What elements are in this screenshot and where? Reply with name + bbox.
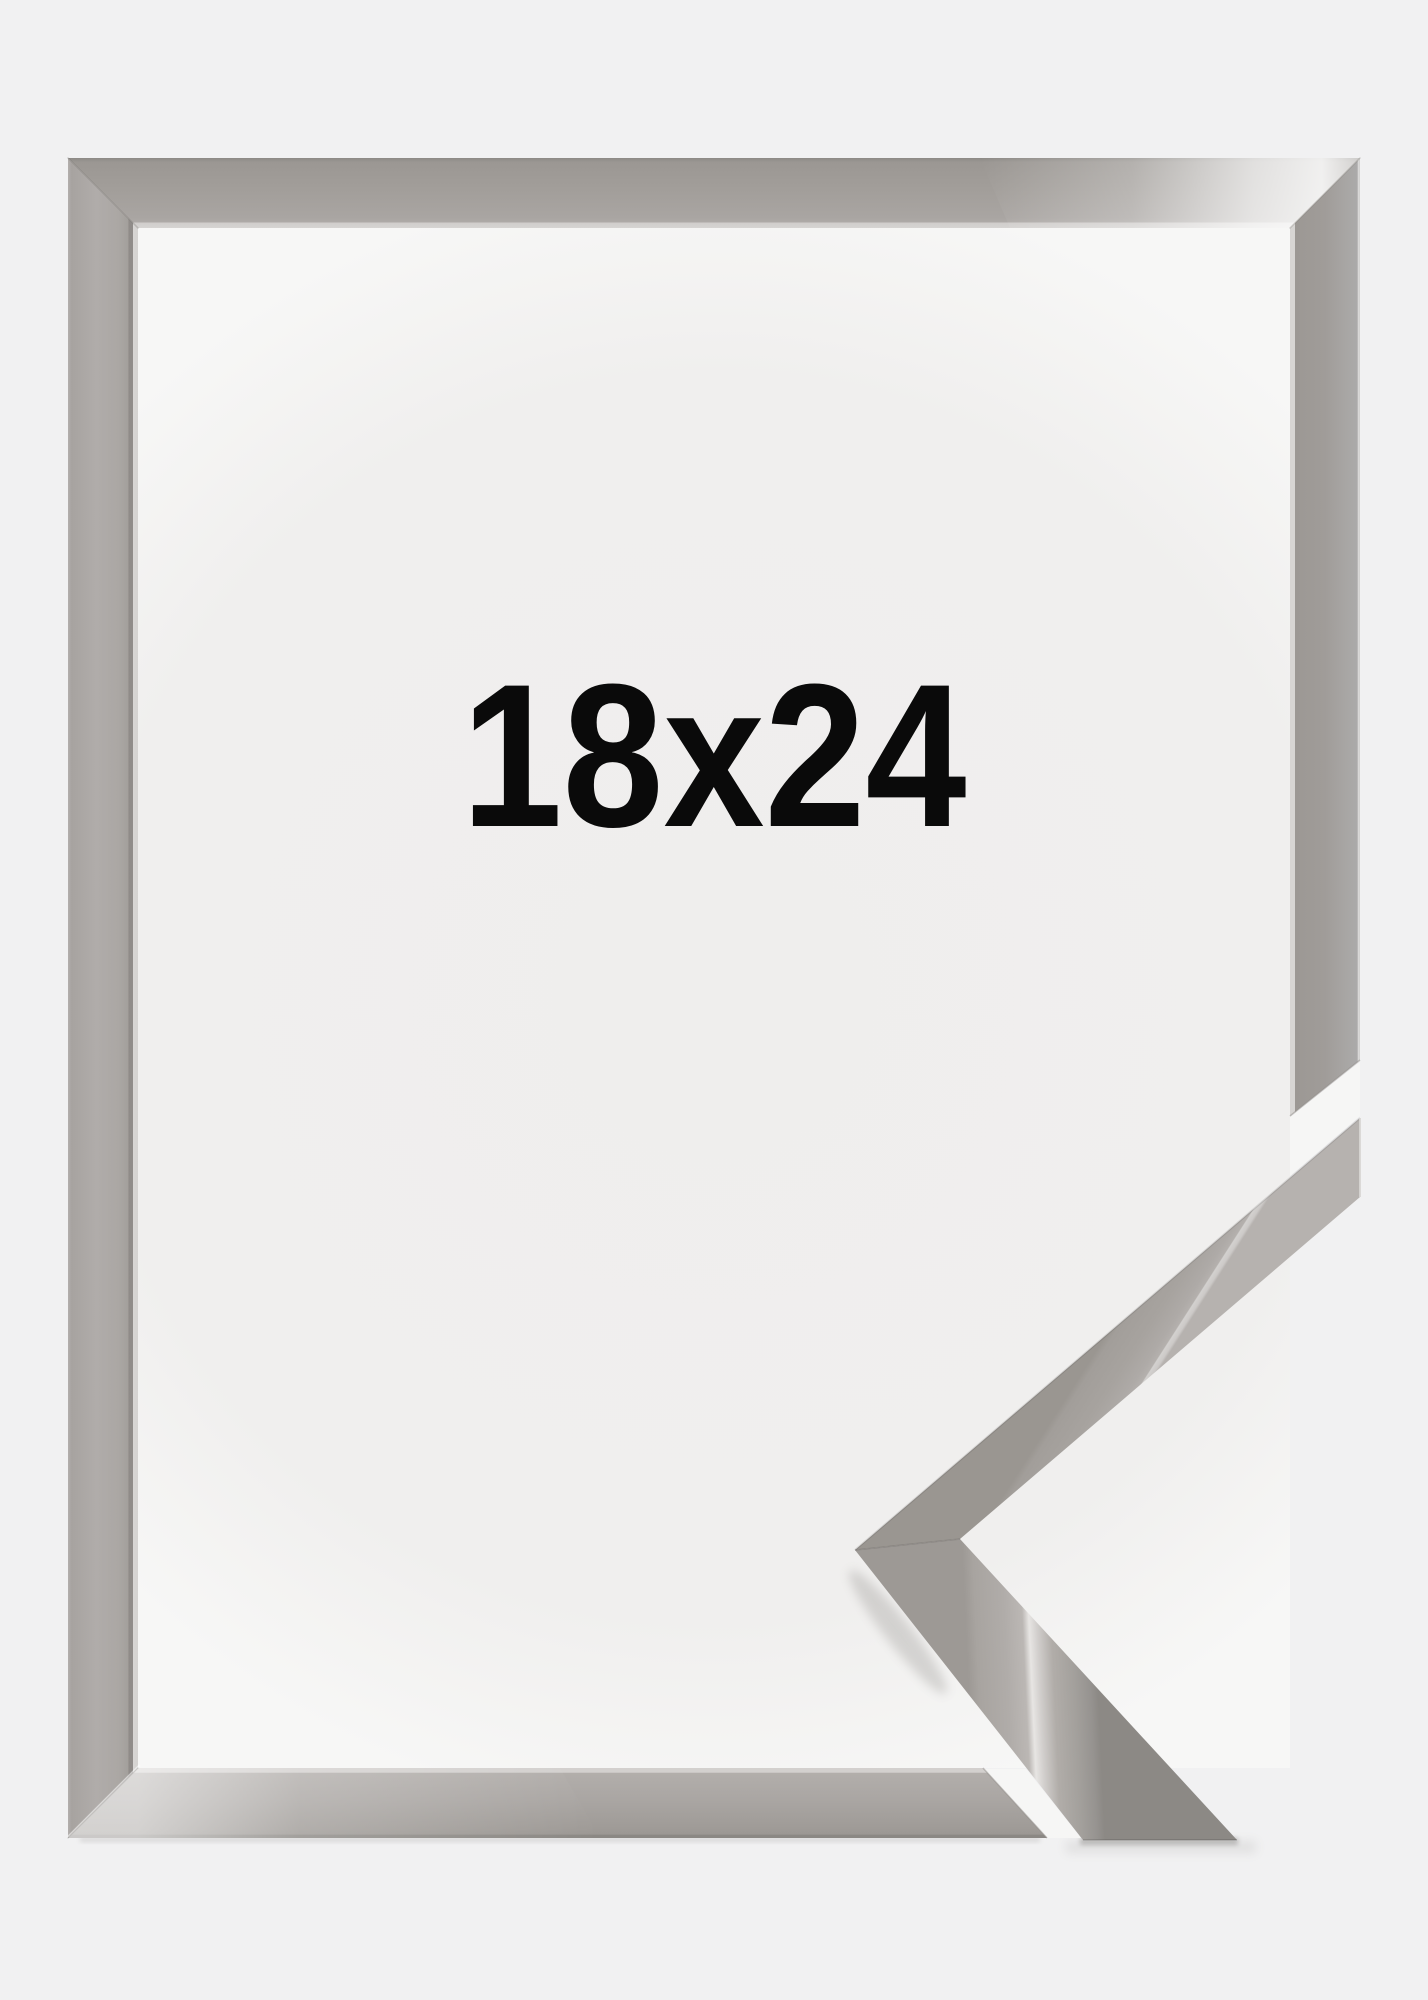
frame-left-bar [68,158,138,1838]
size-label: 18x24 [462,642,967,870]
frame-product-image: 18x24 [0,0,1428,2000]
bottom-bar-gloss-highlight [68,1768,600,1838]
product-photo: 18x24 [0,0,1428,2000]
frame-right-bar [1290,158,1360,1116]
frame-window [138,228,1290,1768]
